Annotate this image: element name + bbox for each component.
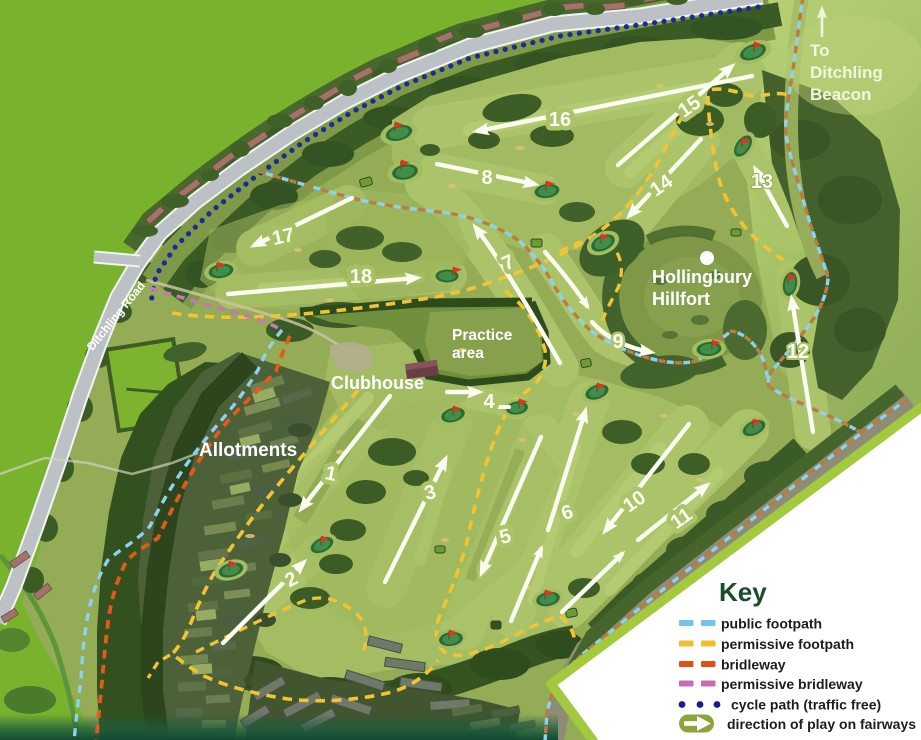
svg-text:To: To <box>810 41 830 60</box>
svg-text:permissive bridleway: permissive bridleway <box>721 676 863 692</box>
svg-text:public footpath: public footpath <box>721 616 822 632</box>
svg-text:12: 12 <box>787 341 809 363</box>
svg-text:bridleway: bridleway <box>721 657 786 673</box>
svg-text:Allotments: Allotments <box>199 440 297 461</box>
svg-text:permissive footpath: permissive footpath <box>721 636 854 652</box>
svg-text:13: 13 <box>751 171 773 193</box>
svg-text:Key: Key <box>719 577 767 607</box>
svg-text:direction of play on fairways: direction of play on fairways <box>727 716 916 732</box>
svg-text:16: 16 <box>549 109 571 131</box>
svg-text:17: 17 <box>270 224 296 250</box>
svg-text:18: 18 <box>350 266 372 288</box>
svg-text:Practice: Practice <box>452 327 513 344</box>
svg-text:8: 8 <box>481 167 492 189</box>
svg-text:4: 4 <box>483 391 495 413</box>
svg-text:cycle path (traffic free): cycle path (traffic free) <box>731 697 881 713</box>
svg-text:Hillfort: Hillfort <box>652 289 710 309</box>
svg-text:Clubhouse: Clubhouse <box>331 373 424 393</box>
svg-text:Hollingbury: Hollingbury <box>652 267 752 287</box>
svg-text:area: area <box>452 345 484 362</box>
svg-text:Ditchling: Ditchling <box>810 63 883 82</box>
svg-text:Beacon: Beacon <box>810 85 871 104</box>
svg-text:9: 9 <box>612 331 623 353</box>
